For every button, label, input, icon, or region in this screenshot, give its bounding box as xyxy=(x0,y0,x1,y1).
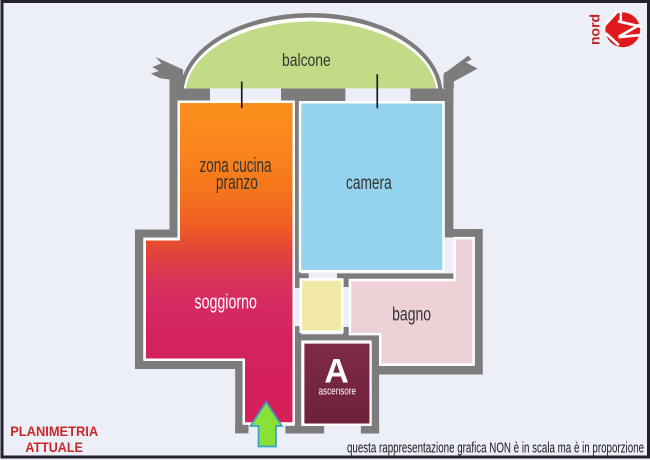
svg-text:ascensore: ascensore xyxy=(319,385,357,397)
svg-text:ATTUALE: ATTUALE xyxy=(25,439,83,455)
svg-text:questa rappresentazione grafic: questa rappresentazione grafica NON è in… xyxy=(347,440,644,457)
svg-text:PLANIMETRIA: PLANIMETRIA xyxy=(10,423,98,439)
svg-text:bagno: bagno xyxy=(392,305,431,326)
svg-text:pranzo: pranzo xyxy=(216,171,258,194)
svg-text:camera: camera xyxy=(346,173,392,194)
svg-text:balcone: balcone xyxy=(282,50,331,70)
svg-text:nord: nord xyxy=(587,14,603,45)
svg-text:soggiorno: soggiorno xyxy=(195,292,257,314)
